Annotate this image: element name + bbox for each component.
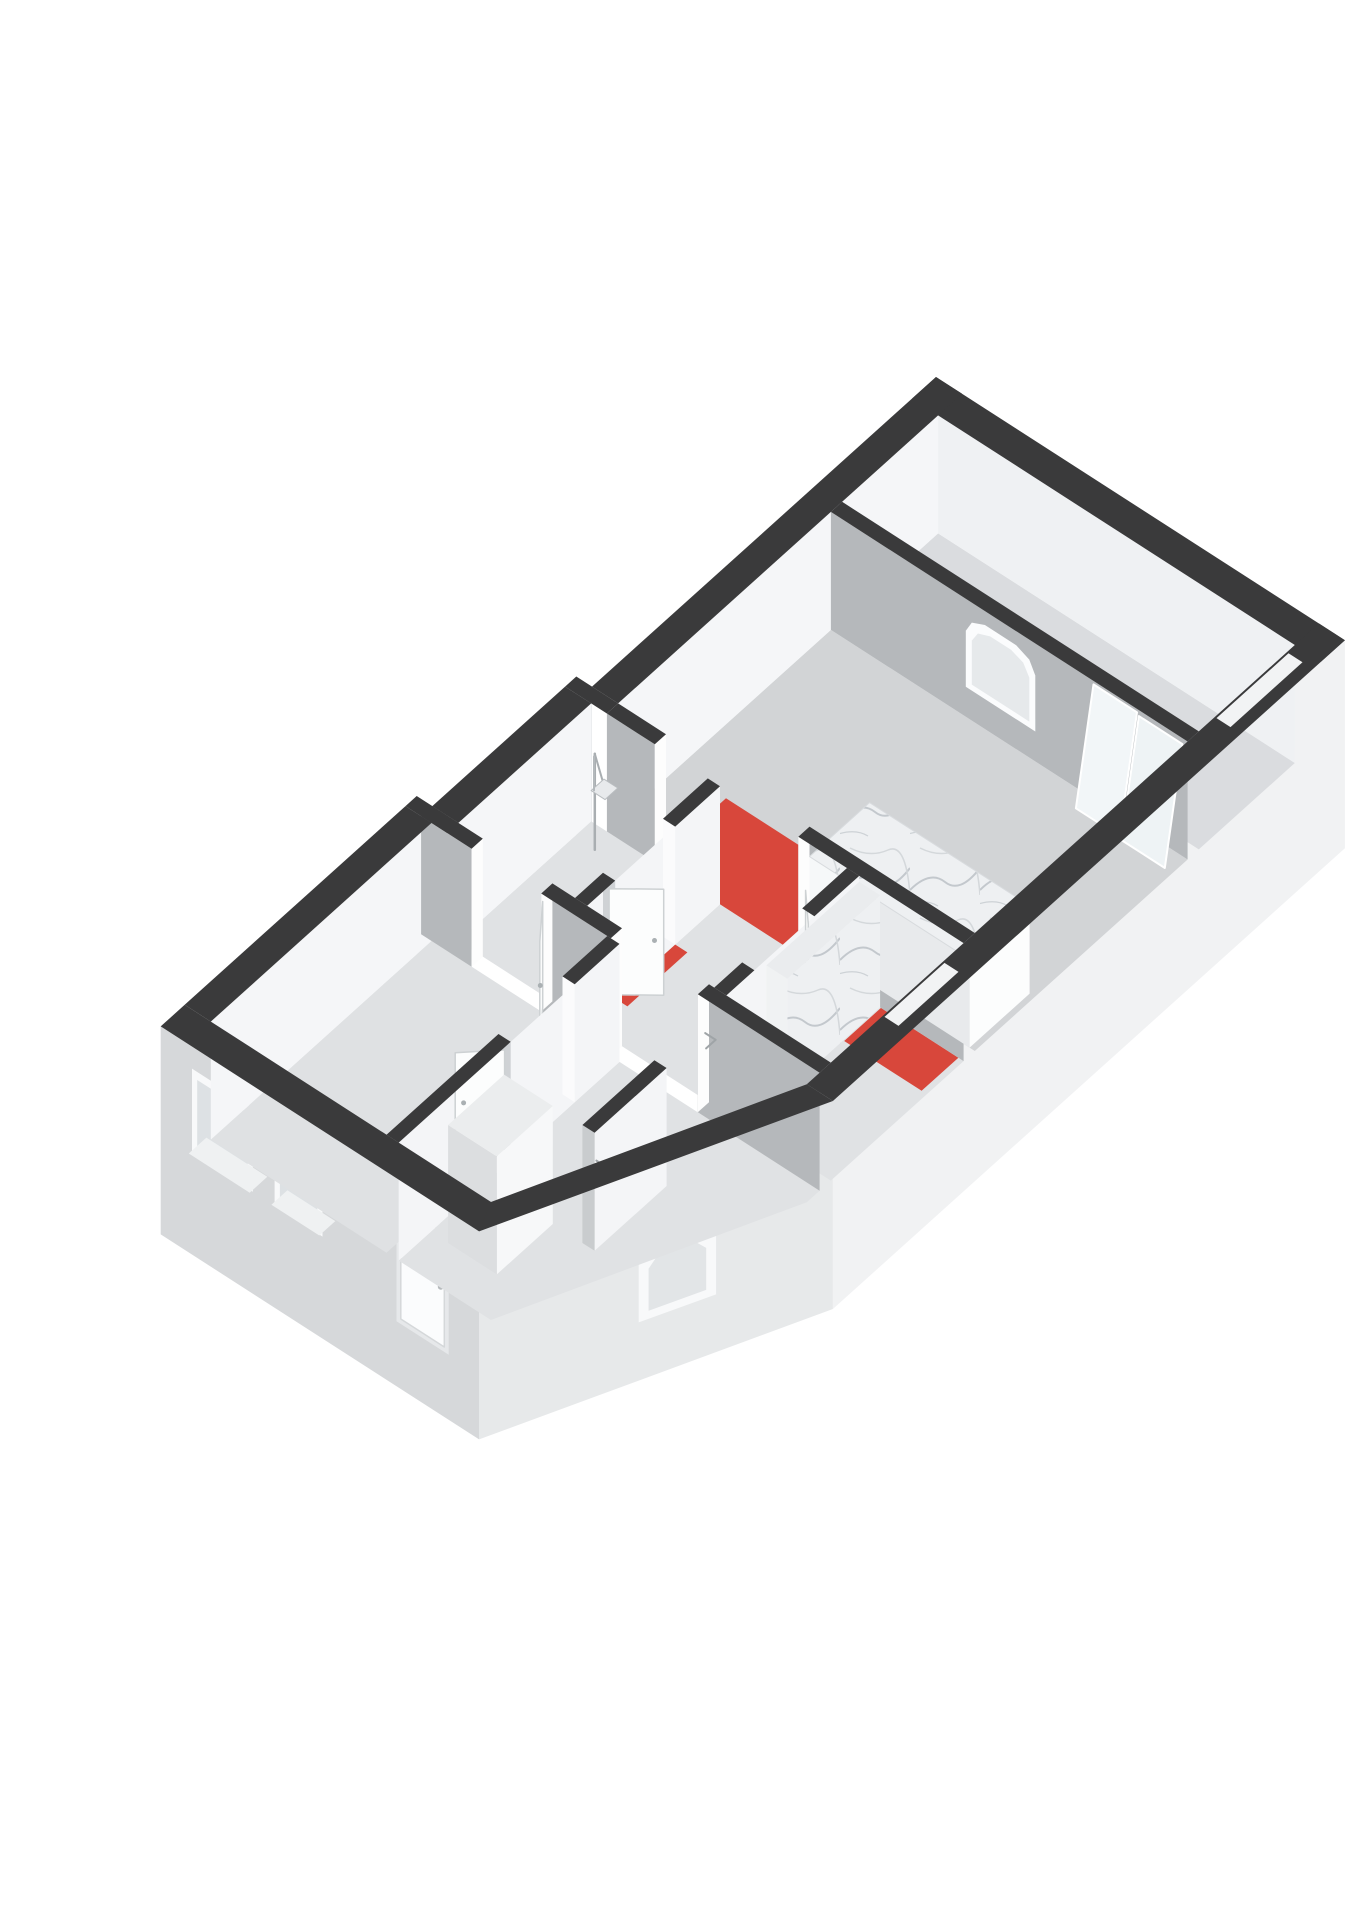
wall-end-cap-3 (472, 839, 483, 967)
hall-door-handle (461, 1100, 466, 1105)
bathroom-door-handle (652, 938, 657, 943)
floorplan-3d-render (0, 0, 1358, 1920)
door-jamb-cap-3 (563, 976, 575, 1102)
bedroom-door-handle (538, 983, 543, 988)
floorplan-stage (0, 0, 1358, 1920)
door-jamb-cap-1 (663, 819, 675, 945)
